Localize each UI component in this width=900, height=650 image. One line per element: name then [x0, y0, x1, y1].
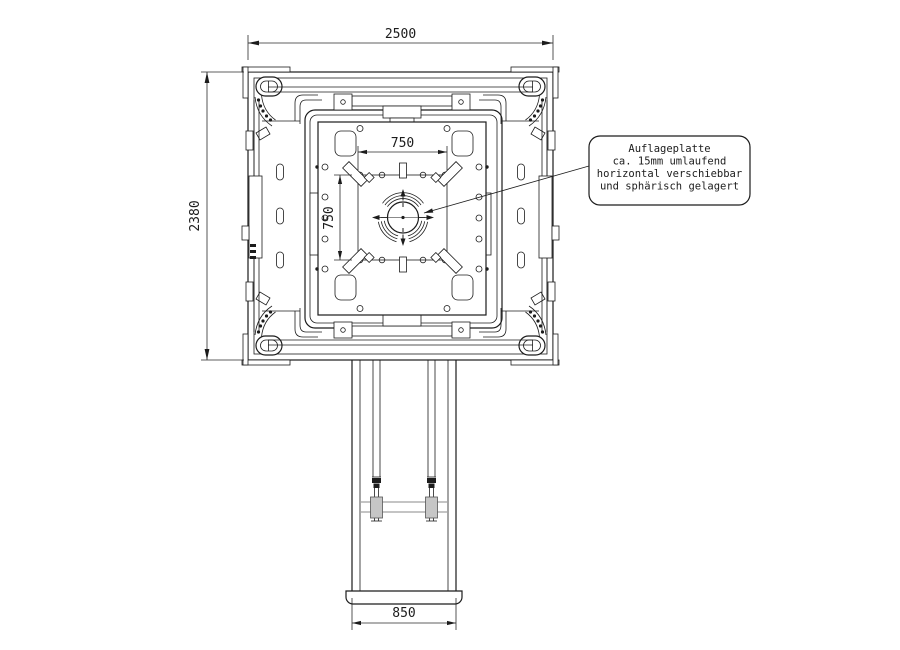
dim-label-overall-width: 2500 [385, 27, 416, 42]
dim-label-plate-width: 750 [391, 136, 414, 151]
dim-label-column-width: 850 [392, 606, 415, 621]
drawing-canvas: 750 750 [0, 0, 900, 650]
dim-overall-height: 2380 [188, 72, 244, 360]
piston-rod-left [371, 360, 383, 521]
annotation-line-4: und sphärisch gelagert [600, 181, 739, 193]
annotation-line-1: Auflageplatte [628, 143, 710, 155]
dim-label-plate-height: 750 [322, 206, 337, 229]
piston-rod-right [426, 360, 438, 521]
annotation-line-2: ca. 15mm umlaufend [613, 156, 727, 168]
dim-label-overall-height: 2380 [188, 200, 203, 231]
annotation-line-3: horizontal verschiebbar [597, 168, 742, 180]
column-base-plate [346, 591, 462, 604]
dim-overall-width: 2500 [248, 27, 553, 60]
technical-drawing: 750 750 [0, 0, 900, 650]
support-column [346, 360, 462, 604]
